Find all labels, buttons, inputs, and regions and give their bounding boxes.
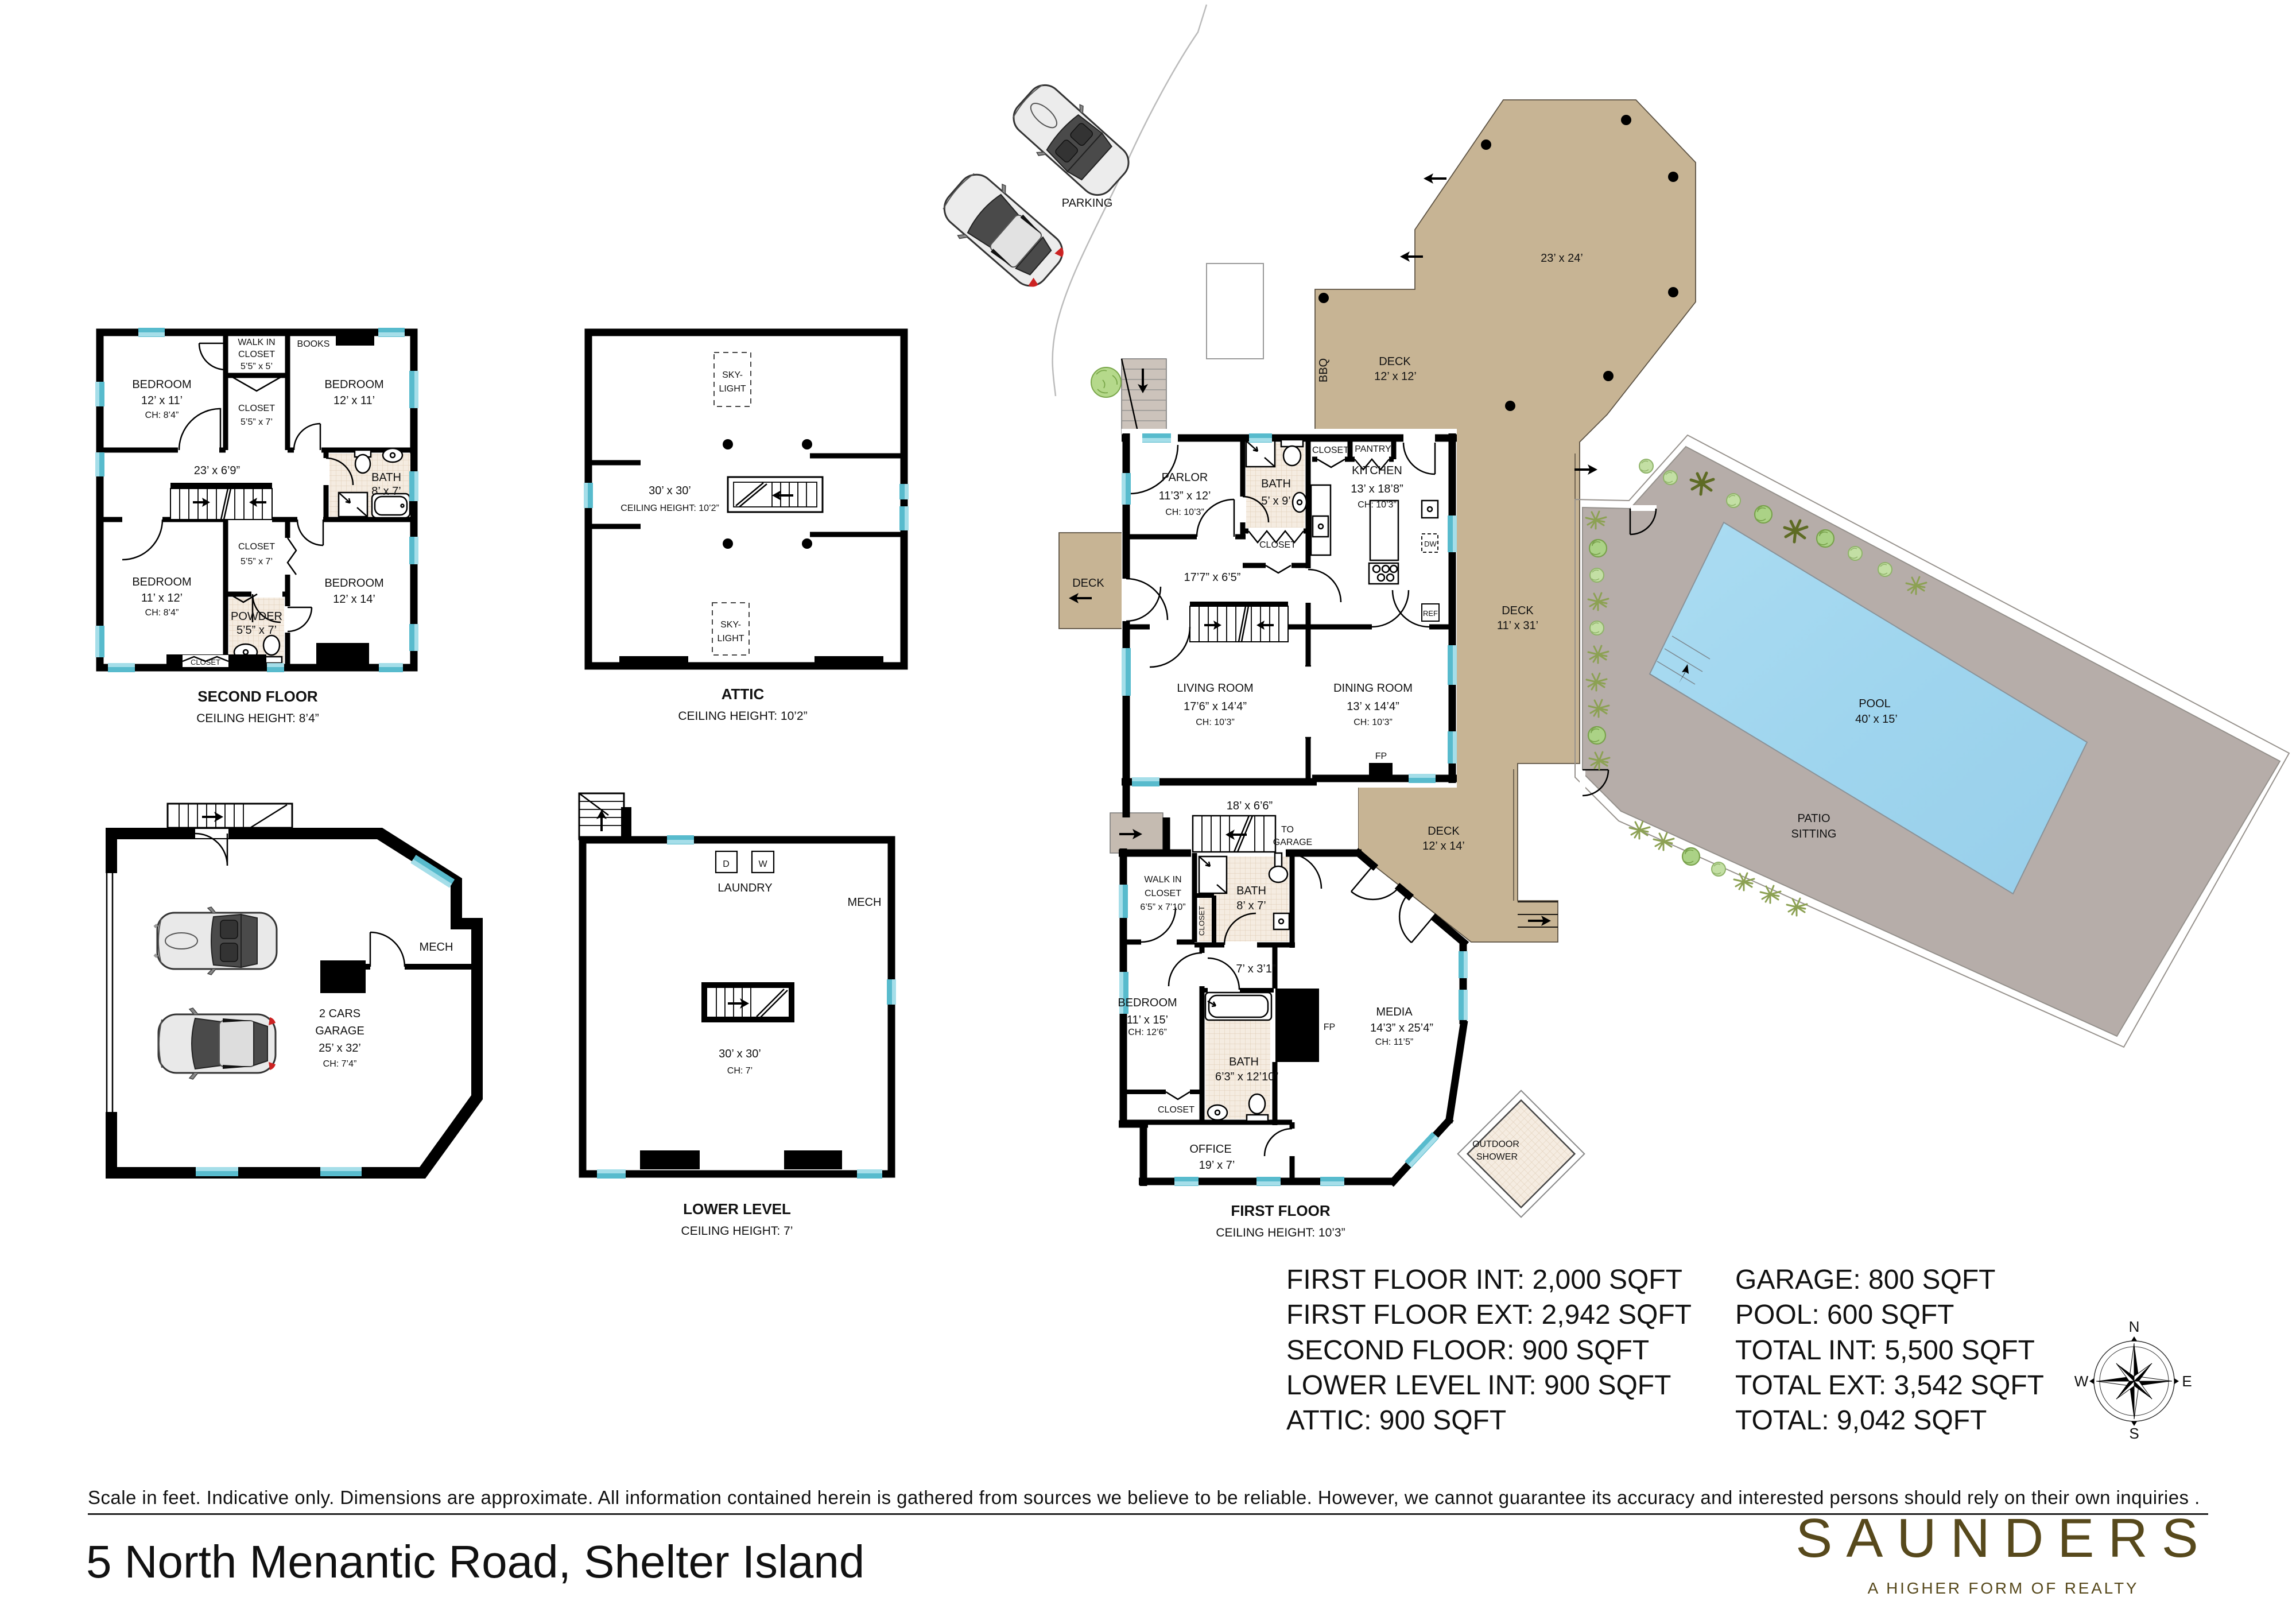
svg-text:SECOND FLOOR: 900 SQFT: SECOND FLOOR: 900 SQFT bbox=[1286, 1335, 1649, 1366]
svg-text:FIRST FLOOR INT: 2,000 SQFT: FIRST FLOOR INT: 2,000 SQFT bbox=[1286, 1265, 1682, 1295]
svg-text:OFFICE: OFFICE bbox=[1189, 1143, 1231, 1156]
svg-text:12’ x 11’: 12’ x 11’ bbox=[333, 394, 375, 407]
svg-text:13’ x 18’8”: 13’ x 18’8” bbox=[1351, 483, 1403, 495]
svg-text:S: S bbox=[2129, 1425, 2139, 1442]
svg-text:LIGHT: LIGHT bbox=[719, 384, 746, 394]
svg-text:CLOSET: CLOSET bbox=[238, 542, 275, 552]
svg-text:CH: 7’: CH: 7’ bbox=[727, 1066, 753, 1076]
svg-text:19’ x 7’: 19’ x 7’ bbox=[1199, 1159, 1235, 1172]
svg-text:WALK IN: WALK IN bbox=[1144, 875, 1181, 885]
svg-text:POWDER: POWDER bbox=[231, 610, 282, 623]
svg-text:11’ x 15’: 11’ x 15’ bbox=[1127, 1014, 1168, 1026]
svg-text:11’3” x 12’: 11’3” x 12’ bbox=[1159, 490, 1211, 502]
svg-text:POOL: POOL bbox=[1859, 697, 1891, 710]
svg-text:CH: 10’3”: CH: 10’3” bbox=[1196, 718, 1235, 727]
svg-text:REF: REF bbox=[1423, 609, 1438, 618]
svg-text:5 North Menantic Road, Shelter: 5 North Menantic Road, Shelter Island bbox=[86, 1536, 864, 1587]
svg-text:LIGHT: LIGHT bbox=[717, 634, 744, 644]
svg-text:FIRST FLOOR EXT: 2,942 SQFT: FIRST FLOOR EXT: 2,942 SQFT bbox=[1286, 1300, 1692, 1330]
svg-text:CLOSET: CLOSET bbox=[1312, 445, 1349, 455]
svg-text:BOOKS: BOOKS bbox=[297, 339, 330, 349]
svg-text:CLOSET: CLOSET bbox=[1145, 889, 1181, 898]
svg-text:GARAGE: GARAGE bbox=[315, 1025, 364, 1037]
svg-text:30’ x 30’: 30’ x 30’ bbox=[649, 485, 691, 497]
svg-text:TOTAL: 9,042 SQFT: TOTAL: 9,042 SQFT bbox=[1735, 1405, 1987, 1436]
svg-text:CLOSET: CLOSET bbox=[1259, 540, 1296, 550]
svg-text:CH: 8’4”: CH: 8’4” bbox=[145, 608, 179, 618]
svg-text:SHOWER: SHOWER bbox=[1476, 1152, 1518, 1162]
svg-text:LOWER LEVEL: LOWER LEVEL bbox=[683, 1200, 791, 1218]
svg-text:DECK: DECK bbox=[1379, 355, 1411, 368]
svg-text:7’ x 3’1”: 7’ x 3’1” bbox=[1236, 963, 1275, 975]
svg-text:GARAGE: 800 SQFT: GARAGE: 800 SQFT bbox=[1735, 1265, 1995, 1295]
svg-text:CEILING HEIGHT: 8’4”: CEILING HEIGHT: 8’4” bbox=[196, 712, 319, 725]
svg-text:2 CARS: 2 CARS bbox=[319, 1007, 360, 1020]
svg-text:D: D bbox=[723, 859, 730, 869]
svg-text:CEILING HEIGHT: 10’3”: CEILING HEIGHT: 10’3” bbox=[1216, 1226, 1345, 1239]
svg-text:PARKING: PARKING bbox=[1062, 197, 1113, 210]
svg-text:TOTAL EXT: 3,542 SQFT: TOTAL EXT: 3,542 SQFT bbox=[1735, 1370, 2044, 1401]
svg-text:CEILING HEIGHT: 7’: CEILING HEIGHT: 7’ bbox=[681, 1224, 793, 1238]
svg-text:N: N bbox=[2129, 1318, 2140, 1335]
svg-text:Scale in feet. Indicative only: Scale in feet. Indicative only. Dimensio… bbox=[88, 1487, 2200, 1508]
svg-text:BATH: BATH bbox=[1236, 885, 1266, 897]
svg-text:TOTAL INT: 5,500 SQFT: TOTAL INT: 5,500 SQFT bbox=[1735, 1335, 2035, 1366]
svg-text:CH: 12’6”: CH: 12’6” bbox=[1128, 1028, 1167, 1037]
svg-text:5’5” x 7’: 5’5” x 7’ bbox=[236, 624, 277, 637]
svg-text:FP: FP bbox=[1324, 1022, 1335, 1032]
svg-text:DECK: DECK bbox=[1072, 577, 1104, 590]
svg-text:17’7” x 6’5”: 17’7” x 6’5” bbox=[1184, 571, 1241, 584]
svg-text:MEDIA: MEDIA bbox=[1376, 1006, 1413, 1018]
svg-text:5’ x 9’: 5’ x 9’ bbox=[1261, 495, 1291, 507]
svg-text:CEILING HEIGHT: 10’2”: CEILING HEIGHT: 10’2” bbox=[678, 710, 807, 723]
svg-text:CH: 10’3”: CH: 10’3” bbox=[1165, 507, 1204, 517]
svg-text:GARAGE: GARAGE bbox=[1273, 838, 1312, 847]
svg-text:FIRST FLOOR: FIRST FLOOR bbox=[1231, 1202, 1331, 1219]
svg-text:CH: 8’4”: CH: 8’4” bbox=[145, 410, 179, 420]
svg-text:12’ x 11’: 12’ x 11’ bbox=[141, 394, 183, 407]
svg-text:23’ x 24’: 23’ x 24’ bbox=[1541, 252, 1583, 265]
svg-text:CLOSET: CLOSET bbox=[238, 350, 275, 359]
svg-text:SAUNDERS: SAUNDERS bbox=[1795, 1507, 2212, 1569]
svg-text:30’ x 30’: 30’ x 30’ bbox=[719, 1048, 761, 1060]
svg-text:BEDROOM: BEDROOM bbox=[132, 576, 191, 588]
svg-text:LIVING ROOM: LIVING ROOM bbox=[1177, 682, 1253, 695]
svg-text:MECH: MECH bbox=[420, 941, 453, 954]
svg-text:25’ x 32’: 25’ x 32’ bbox=[319, 1042, 361, 1055]
svg-text:12’ x 14’: 12’ x 14’ bbox=[1422, 840, 1465, 852]
svg-text:18’ x 6’6”: 18’ x 6’6” bbox=[1227, 800, 1273, 812]
svg-text:CLOSET: CLOSET bbox=[1158, 1105, 1194, 1115]
svg-text:POOL: 600 SQFT: POOL: 600 SQFT bbox=[1735, 1300, 1954, 1330]
svg-text:BEDROOM: BEDROOM bbox=[1118, 997, 1177, 1009]
svg-text:CEILING HEIGHT: 10’2”: CEILING HEIGHT: 10’2” bbox=[620, 503, 719, 513]
svg-text:SKY-: SKY- bbox=[720, 620, 741, 630]
svg-text:BATH: BATH bbox=[1229, 1056, 1259, 1068]
svg-text:MECH: MECH bbox=[848, 896, 882, 909]
svg-text:DW: DW bbox=[1424, 540, 1437, 548]
svg-text:CH: 10’3”: CH: 10’3” bbox=[1358, 500, 1397, 510]
svg-text:DECK: DECK bbox=[1428, 825, 1460, 838]
svg-text:BATH: BATH bbox=[1261, 478, 1291, 490]
svg-text:11’ x 12’: 11’ x 12’ bbox=[141, 592, 183, 604]
svg-text:A HIGHER FORM OF REALTY: A HIGHER FORM OF REALTY bbox=[1868, 1579, 2139, 1597]
svg-text:23’ x 6’9”: 23’ x 6’9” bbox=[194, 464, 240, 477]
svg-text:5’5” x 7’: 5’5” x 7’ bbox=[241, 557, 273, 567]
svg-text:12’ x 14’: 12’ x 14’ bbox=[333, 593, 375, 606]
svg-text:BEDROOM: BEDROOM bbox=[132, 378, 191, 391]
svg-text:WALK IN: WALK IN bbox=[238, 338, 275, 347]
svg-text:OUTDOOR: OUTDOOR bbox=[1472, 1139, 1519, 1149]
svg-text:CH: 10’3”: CH: 10’3” bbox=[1353, 718, 1393, 727]
svg-text:PATIO: PATIO bbox=[1797, 812, 1830, 825]
svg-text:40’ x 15’: 40’ x 15’ bbox=[1855, 713, 1898, 726]
svg-text:CLOSET: CLOSET bbox=[238, 404, 275, 413]
svg-text:PANTRY: PANTRY bbox=[1355, 444, 1391, 454]
svg-text:E: E bbox=[2182, 1373, 2192, 1390]
svg-text:CLOSET: CLOSET bbox=[1197, 906, 1206, 936]
svg-text:CLOSET: CLOSET bbox=[191, 658, 220, 666]
svg-text:5’5” x 7’: 5’5” x 7’ bbox=[241, 417, 273, 427]
svg-text:12’ x 12’: 12’ x 12’ bbox=[1374, 370, 1417, 383]
svg-text:ATTIC: 900 SQFT: ATTIC: 900 SQFT bbox=[1286, 1405, 1506, 1436]
svg-text:SITTING: SITTING bbox=[1791, 828, 1837, 840]
svg-text:ATTIC: ATTIC bbox=[722, 685, 765, 703]
svg-text:DECK: DECK bbox=[1502, 604, 1534, 617]
svg-text:W: W bbox=[2074, 1373, 2089, 1390]
svg-text:BBQ: BBQ bbox=[1317, 358, 1330, 382]
svg-text:13’ x 14’4”: 13’ x 14’4” bbox=[1347, 700, 1399, 713]
svg-text:SKY-: SKY- bbox=[722, 370, 743, 380]
svg-text:TO: TO bbox=[1281, 825, 1294, 835]
svg-text:11’ x 31’: 11’ x 31’ bbox=[1497, 619, 1538, 632]
svg-text:6’3” x 12’10”: 6’3” x 12’10” bbox=[1215, 1071, 1278, 1083]
svg-text:14’3” x 25’4”: 14’3” x 25’4” bbox=[1370, 1022, 1433, 1034]
svg-text:W: W bbox=[758, 859, 767, 869]
svg-text:PARLOR: PARLOR bbox=[1162, 471, 1208, 484]
svg-text:KITCHEN: KITCHEN bbox=[1352, 464, 1402, 477]
svg-text:17’6” x 14’4”: 17’6” x 14’4” bbox=[1184, 700, 1247, 713]
svg-text:BEDROOM: BEDROOM bbox=[324, 577, 383, 590]
svg-text:CH: 11’5”: CH: 11’5” bbox=[1375, 1037, 1413, 1047]
svg-text:CH: 7’4”: CH: 7’4” bbox=[323, 1059, 357, 1069]
svg-text:5’5” x 5’: 5’5” x 5’ bbox=[241, 362, 273, 371]
svg-text:6’5” x 7’10”: 6’5” x 7’10” bbox=[1140, 902, 1185, 912]
svg-text:LAUNDRY: LAUNDRY bbox=[717, 882, 772, 894]
svg-text:FP: FP bbox=[1375, 751, 1387, 761]
svg-text:8’ x 7’: 8’ x 7’ bbox=[1236, 900, 1266, 912]
svg-text:8’ x 7’: 8’ x 7’ bbox=[371, 485, 401, 498]
svg-text:LOWER LEVEL INT: 900 SQFT: LOWER LEVEL INT: 900 SQFT bbox=[1286, 1370, 1671, 1401]
svg-text:SECOND FLOOR: SECOND FLOOR bbox=[197, 688, 318, 705]
svg-text:DINING ROOM: DINING ROOM bbox=[1333, 682, 1413, 695]
svg-text:BATH: BATH bbox=[371, 471, 401, 484]
svg-text:BEDROOM: BEDROOM bbox=[324, 378, 383, 391]
